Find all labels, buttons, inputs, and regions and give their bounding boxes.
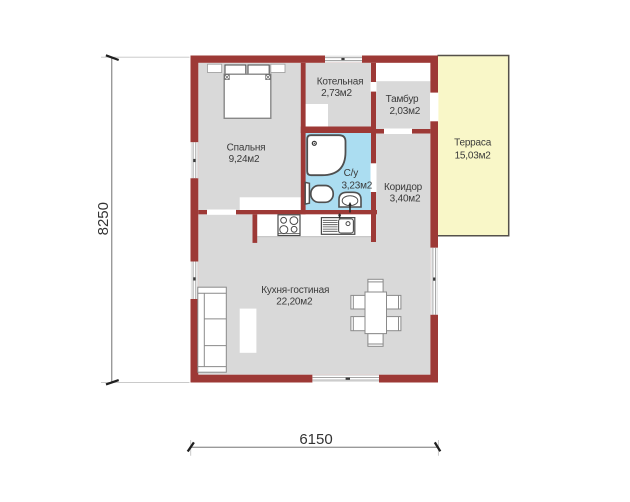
svg-text:9,24м2: 9,24м2 bbox=[229, 154, 260, 165]
svg-text:Терраса: Терраса bbox=[454, 137, 492, 148]
svg-text:15,03м2: 15,03м2 bbox=[455, 150, 492, 161]
svg-text:8250: 8250 bbox=[95, 202, 112, 235]
svg-text:Кухня-гостиная: Кухня-гостиная bbox=[261, 285, 329, 296]
svg-text:6150: 6150 bbox=[299, 431, 332, 448]
svg-text:Котельная: Котельная bbox=[317, 77, 364, 88]
svg-text:22,20м2: 22,20м2 bbox=[276, 297, 313, 308]
svg-text:Тамбур: Тамбур bbox=[386, 93, 419, 105]
svg-text:Коридор: Коридор bbox=[384, 182, 423, 193]
svg-text:С/у: С/у bbox=[344, 168, 359, 179]
svg-text:Спальня: Спальня bbox=[227, 142, 266, 153]
svg-text:3,23м2: 3,23м2 bbox=[341, 181, 372, 192]
svg-text:2,73м2: 2,73м2 bbox=[321, 88, 352, 99]
svg-text:2,03м2: 2,03м2 bbox=[389, 106, 420, 117]
svg-text:3,40м2: 3,40м2 bbox=[390, 194, 421, 205]
